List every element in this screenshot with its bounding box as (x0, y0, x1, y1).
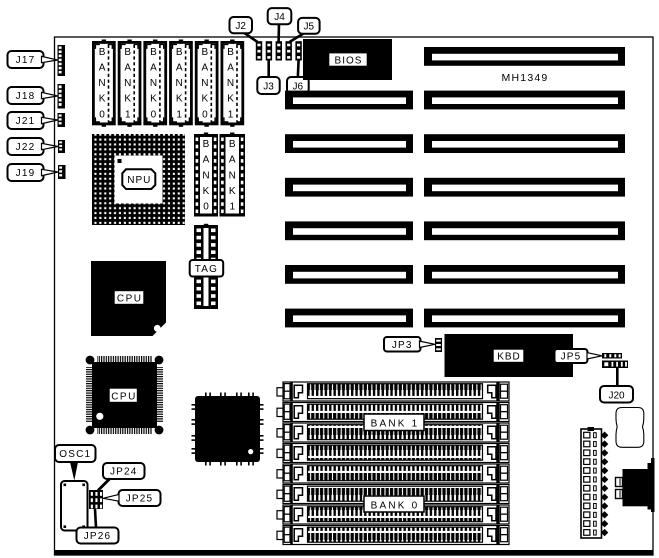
svg-text:K: K (124, 94, 131, 105)
svg-text:J20: J20 (608, 391, 625, 402)
svg-text:K: K (176, 94, 183, 105)
svg-text:B: B (202, 47, 209, 58)
svg-text:1: 1 (229, 202, 235, 213)
svg-text:1: 1 (176, 109, 182, 120)
svg-text:J3: J3 (263, 82, 274, 93)
svg-text:J2: J2 (235, 21, 246, 32)
svg-text:NPU: NPU (127, 175, 151, 186)
svg-text:N: N (202, 170, 209, 181)
svg-text:N: N (98, 78, 105, 89)
svg-text:B: B (150, 47, 157, 58)
svg-text:JP3: JP3 (392, 340, 413, 351)
svg-text:JP26: JP26 (84, 531, 112, 542)
svg-text:JP24: JP24 (110, 467, 138, 478)
svg-text:OSC1: OSC1 (59, 449, 91, 460)
svg-text:TAG: TAG (195, 264, 218, 275)
svg-text:A: A (203, 155, 210, 166)
svg-text:J21: J21 (16, 116, 36, 127)
svg-text:N: N (124, 78, 131, 89)
svg-text:B: B (203, 139, 210, 150)
svg-text:K: K (203, 186, 210, 197)
svg-text:K: K (202, 94, 209, 105)
svg-text:K: K (99, 94, 106, 105)
svg-text:A: A (176, 63, 183, 74)
svg-text:K: K (229, 186, 236, 197)
svg-text:A: A (150, 63, 157, 74)
svg-text:CPU: CPU (117, 294, 143, 305)
svg-text:JP5: JP5 (561, 352, 582, 363)
svg-text:J18: J18 (16, 91, 36, 102)
svg-text:K: K (150, 94, 157, 105)
svg-text:A: A (227, 63, 234, 74)
svg-text:0: 0 (203, 202, 209, 213)
svg-text:J17: J17 (16, 55, 36, 66)
svg-text:A: A (229, 155, 236, 166)
svg-text:B: B (227, 47, 234, 58)
svg-text:N: N (227, 78, 234, 89)
svg-text:K: K (227, 94, 234, 105)
svg-text:CPU: CPU (111, 392, 137, 403)
svg-text:BIOS: BIOS (335, 55, 363, 66)
svg-text:J5: J5 (304, 22, 315, 33)
svg-text:0: 0 (202, 109, 208, 120)
svg-text:0: 0 (99, 109, 105, 120)
svg-text:N: N (176, 78, 183, 89)
svg-text:N: N (150, 78, 157, 89)
svg-text:J19: J19 (16, 168, 36, 179)
svg-text:J22: J22 (16, 142, 36, 153)
svg-text:N: N (229, 170, 236, 181)
svg-text:B: B (99, 47, 106, 58)
svg-text:N: N (201, 78, 208, 89)
svg-text:0: 0 (151, 109, 157, 120)
svg-text:B: B (176, 47, 183, 58)
svg-text:J4: J4 (274, 12, 285, 23)
svg-text:BANK 1: BANK 1 (371, 419, 420, 430)
svg-text:KBD: KBD (497, 352, 521, 363)
svg-text:1: 1 (228, 109, 234, 120)
svg-text:MH1349: MH1349 (502, 72, 549, 84)
svg-text:A: A (124, 63, 131, 74)
svg-text:B: B (229, 139, 236, 150)
svg-text:BANK 0: BANK 0 (371, 501, 420, 512)
svg-text:A: A (202, 63, 209, 74)
svg-text:1: 1 (125, 109, 131, 120)
svg-text:B: B (124, 47, 131, 58)
svg-text:A: A (99, 63, 106, 74)
svg-text:JP25: JP25 (126, 494, 154, 505)
